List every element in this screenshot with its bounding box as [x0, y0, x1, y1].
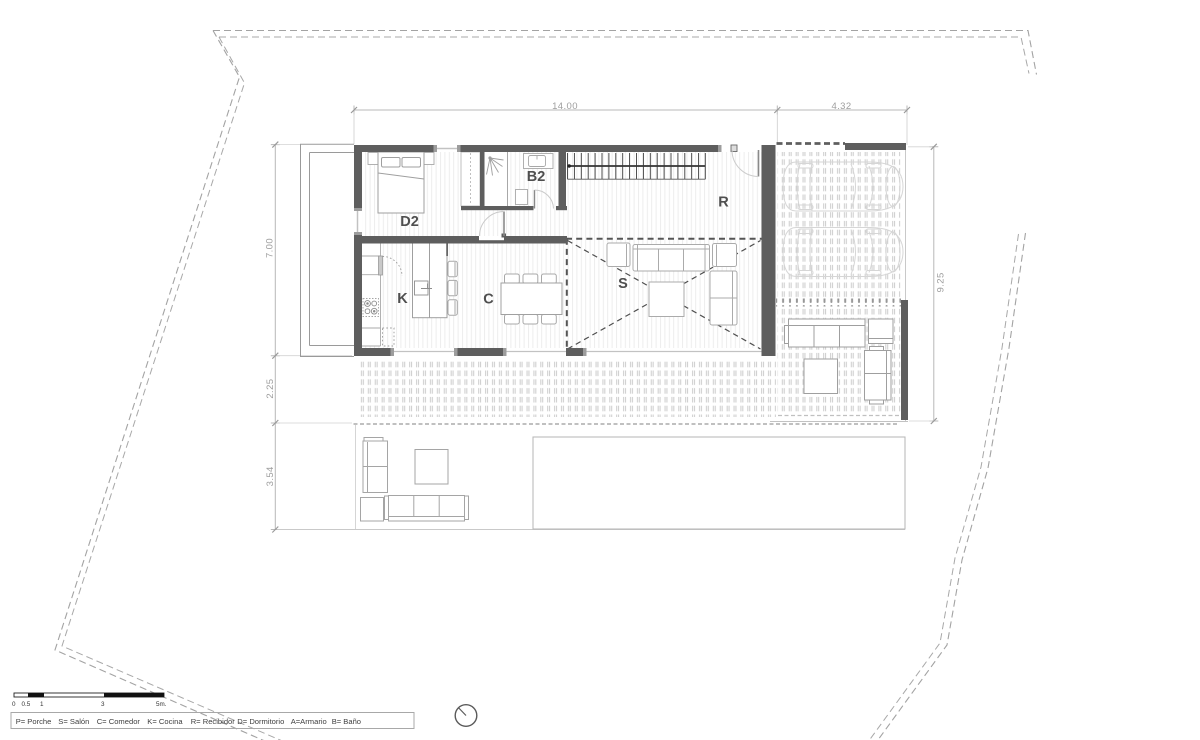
svg-text:3.54: 3.54	[265, 466, 276, 486]
svg-text:4.32: 4.32	[831, 101, 851, 112]
svg-text:2.25: 2.25	[265, 379, 276, 399]
svg-text:5m.: 5m.	[156, 701, 167, 708]
svg-text:0: 0	[12, 701, 16, 708]
svg-text:C: C	[483, 292, 494, 308]
svg-text:14.00: 14.00	[552, 101, 578, 112]
svg-text:3: 3	[101, 701, 105, 708]
svg-text:S: S	[618, 276, 628, 292]
svg-text:D2: D2	[400, 214, 419, 230]
svg-text:7.00: 7.00	[265, 238, 276, 258]
svg-text:0.5: 0.5	[22, 701, 31, 708]
svg-text:R: R	[718, 195, 729, 211]
svg-text:9.25: 9.25	[935, 272, 946, 292]
svg-text:K: K	[397, 291, 408, 307]
svg-text:B2: B2	[527, 169, 546, 185]
svg-text:1: 1	[40, 701, 44, 708]
